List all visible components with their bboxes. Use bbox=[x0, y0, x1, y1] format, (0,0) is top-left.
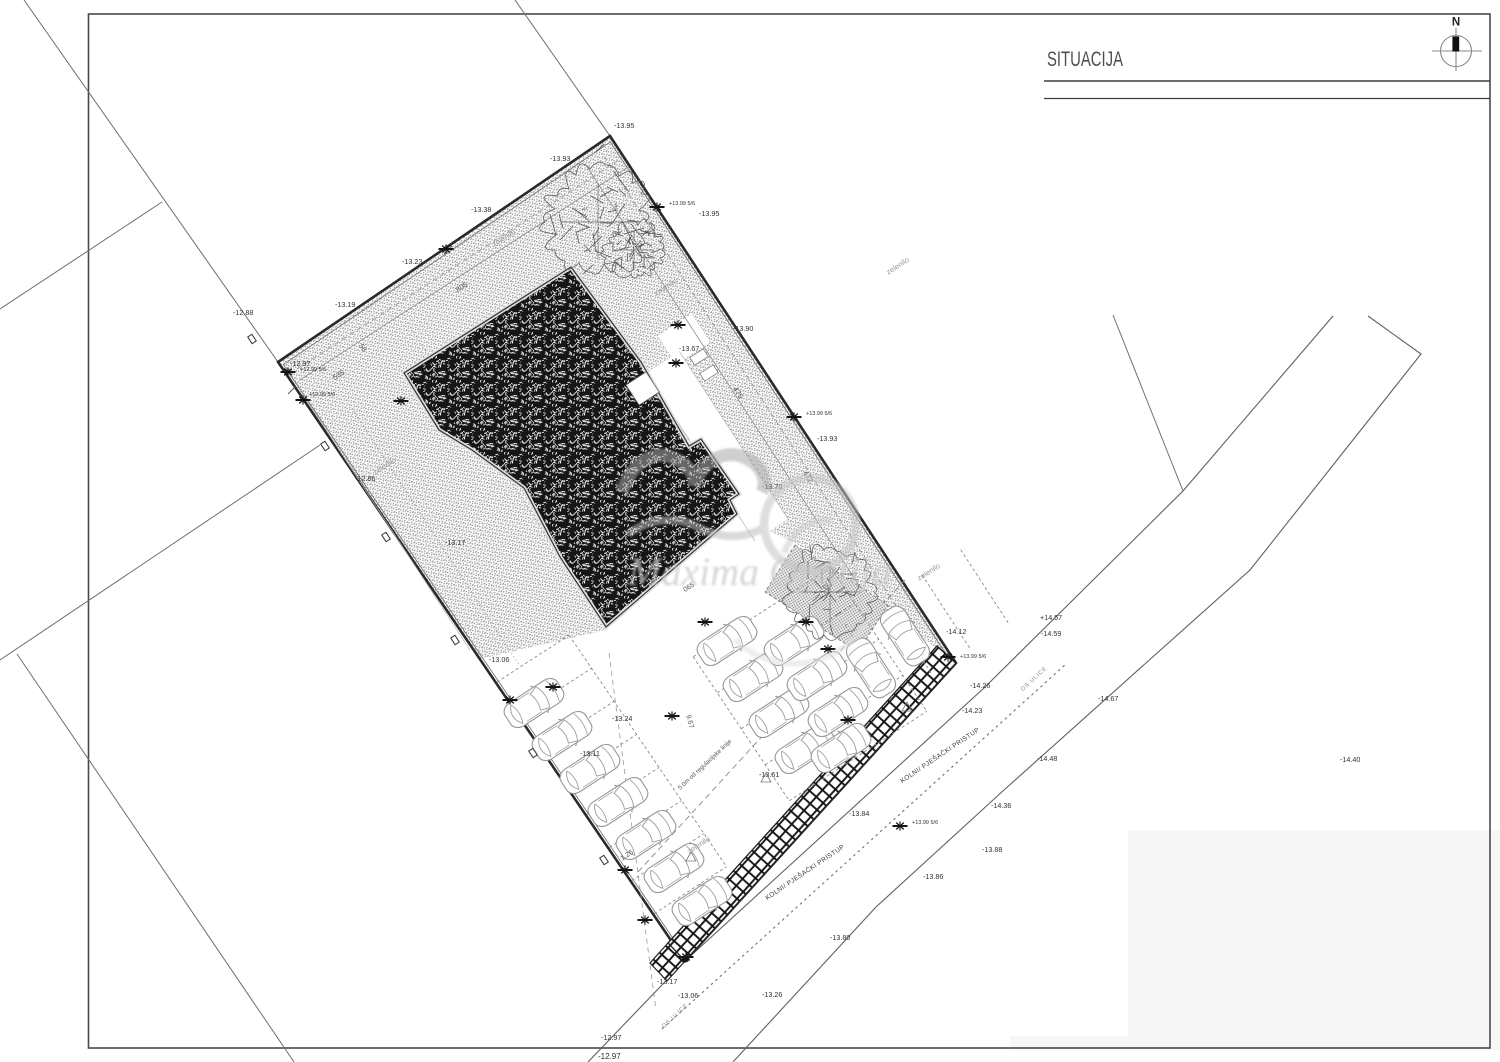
svg-text:-13.24: -13.24 bbox=[612, 714, 632, 723]
svg-text:-13.19: -13.19 bbox=[335, 300, 355, 309]
svg-text:-14.59: -14.59 bbox=[1041, 629, 1061, 638]
svg-text:-14.40: -14.40 bbox=[1340, 755, 1360, 764]
svg-text:-13.86: -13.86 bbox=[923, 872, 943, 881]
svg-text:-13.17: -13.17 bbox=[657, 977, 677, 986]
svg-text:-13.93: -13.93 bbox=[550, 154, 570, 163]
svg-text:-13.80: -13.80 bbox=[830, 933, 850, 942]
svg-text:-13.11: -13.11 bbox=[580, 749, 600, 758]
svg-text:-12.97: -12.97 bbox=[290, 359, 310, 368]
svg-text:-13.26: -13.26 bbox=[762, 990, 782, 999]
svg-text:-12.97: -12.97 bbox=[598, 1052, 621, 1061]
svg-text:+13.99 5/6: +13.99 5/6 bbox=[912, 820, 938, 826]
svg-text:-13.67: -13.67 bbox=[679, 344, 699, 353]
svg-text:-13.95: -13.95 bbox=[699, 209, 719, 218]
svg-text:-14.12: -14.12 bbox=[946, 627, 966, 636]
svg-text:-14.48: -14.48 bbox=[1037, 754, 1057, 763]
svg-text:-13.88: -13.88 bbox=[982, 845, 1002, 854]
svg-text:+14.57: +14.57 bbox=[1040, 613, 1062, 622]
svg-text:+13.99 5/6: +13.99 5/6 bbox=[806, 411, 832, 417]
svg-text:-13.95: -13.95 bbox=[614, 121, 634, 130]
svg-text:-13.61: -13.61 bbox=[759, 770, 779, 779]
svg-text:-12.88: -12.88 bbox=[233, 308, 253, 317]
svg-text:-13.23: -13.23 bbox=[402, 257, 422, 266]
svg-text:-12.97: -12.97 bbox=[601, 1033, 621, 1042]
svg-text:-13.38: -13.38 bbox=[471, 205, 491, 214]
svg-text:-13.90: -13.90 bbox=[733, 324, 753, 333]
svg-text:-14.26: -14.26 bbox=[970, 681, 990, 690]
svg-text:-13.06: -13.06 bbox=[678, 991, 698, 1000]
svg-text:+13.99 5/6: +13.99 5/6 bbox=[960, 654, 986, 660]
svg-text:-13.84: -13.84 bbox=[849, 809, 869, 818]
svg-text:-13.93: -13.93 bbox=[817, 434, 837, 443]
svg-text:-12.86: -12.86 bbox=[355, 474, 375, 483]
svg-text:N: N bbox=[1452, 17, 1460, 29]
svg-text:Maxima Opatija: Maxima Opatija bbox=[627, 549, 891, 594]
svg-text:+12.99 5/6: +12.99 5/6 bbox=[309, 392, 335, 398]
svg-text:-14.23: -14.23 bbox=[962, 706, 982, 715]
svg-text:-14.36: -14.36 bbox=[991, 801, 1011, 810]
svg-text:-14.67: -14.67 bbox=[1098, 694, 1118, 703]
svg-text:SITUACIJA: SITUACIJA bbox=[1047, 48, 1123, 71]
svg-text:+13.99 5/6: +13.99 5/6 bbox=[669, 201, 695, 207]
svg-text:-13.17: -13.17 bbox=[445, 538, 465, 547]
svg-text:-13.06: -13.06 bbox=[489, 655, 509, 664]
